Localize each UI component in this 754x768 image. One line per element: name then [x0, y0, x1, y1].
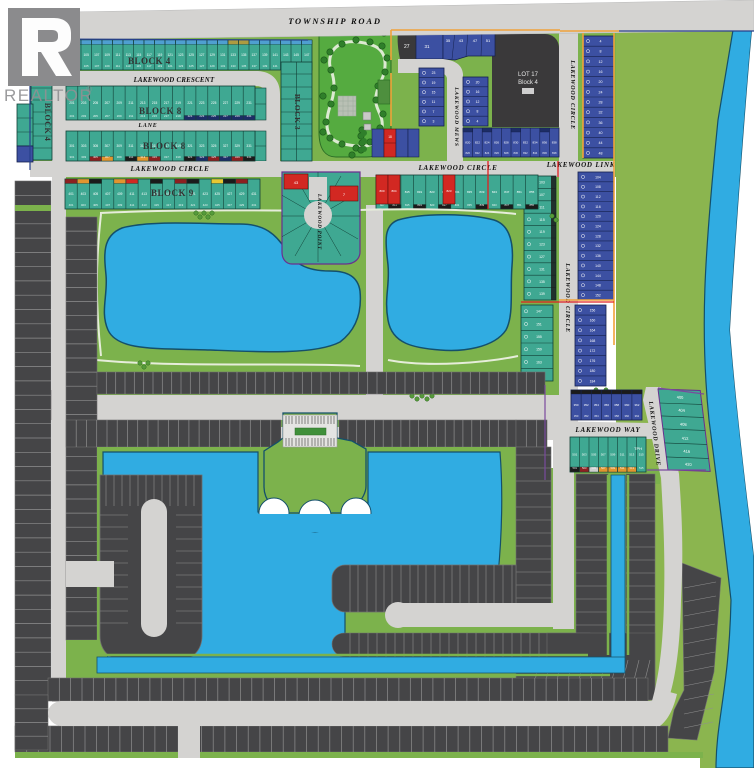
svg-text:501: 501	[572, 453, 577, 457]
svg-text:836: 836	[542, 141, 547, 145]
svg-text:511: 511	[620, 453, 625, 457]
svg-text:11: 11	[432, 100, 436, 104]
svg-text:127: 127	[199, 64, 204, 68]
svg-text:LOT 17: LOT 17	[518, 72, 539, 78]
svg-text:141: 141	[273, 53, 279, 57]
svg-text:109: 109	[105, 64, 110, 68]
svg-text:311: 311	[129, 155, 134, 159]
svg-text:505: 505	[591, 453, 596, 457]
svg-text:BLOCK 4: BLOCK 4	[128, 56, 171, 66]
svg-text:421: 421	[191, 203, 196, 207]
svg-text:141: 141	[273, 64, 278, 68]
svg-text:327: 327	[223, 155, 228, 159]
svg-text:327: 327	[223, 144, 229, 148]
svg-text:217: 217	[164, 101, 170, 105]
svg-text:111: 111	[116, 64, 121, 68]
svg-text:180: 180	[590, 369, 596, 373]
svg-text:834: 834	[533, 151, 538, 155]
svg-text:151: 151	[536, 322, 542, 326]
svg-text:109: 109	[105, 53, 111, 57]
svg-text:LAKEWOOD CRESCENT: LAKEWOOD CRESCENT	[133, 77, 215, 84]
svg-text:401: 401	[69, 203, 74, 207]
svg-text:301: 301	[69, 155, 74, 159]
svg-text:207: 207	[105, 114, 110, 118]
svg-text:838: 838	[552, 141, 557, 145]
svg-text:125: 125	[189, 64, 194, 68]
svg-text:8: 8	[600, 50, 602, 54]
svg-text:838: 838	[552, 151, 557, 155]
svg-text:303: 303	[81, 155, 86, 159]
svg-text:855: 855	[529, 190, 534, 194]
svg-text:163: 163	[536, 360, 542, 364]
svg-text:139: 139	[539, 292, 545, 296]
svg-text:27: 27	[404, 44, 410, 50]
svg-text:223: 223	[199, 114, 204, 118]
svg-text:309: 309	[117, 144, 123, 148]
svg-text:227: 227	[223, 114, 228, 118]
svg-text:172: 172	[590, 349, 596, 353]
svg-text:329: 329	[235, 155, 240, 159]
svg-text:168: 168	[590, 339, 596, 343]
svg-text:LANE: LANE	[137, 123, 157, 129]
svg-text:131: 131	[220, 53, 226, 57]
svg-text:307: 307	[105, 144, 111, 148]
svg-text:321: 321	[188, 155, 193, 159]
svg-text:819: 819	[417, 203, 422, 207]
svg-text:822: 822	[475, 141, 480, 145]
svg-text:354: 354	[594, 403, 599, 407]
svg-text:509: 509	[610, 453, 615, 457]
svg-text:505: 505	[592, 466, 597, 470]
svg-text:325: 325	[211, 155, 216, 159]
svg-text:515: 515	[639, 466, 644, 470]
svg-text:105: 105	[84, 53, 90, 57]
svg-text:319: 319	[176, 155, 181, 159]
svg-text:24: 24	[599, 90, 603, 94]
svg-text:148: 148	[595, 284, 601, 288]
svg-text:15: 15	[432, 91, 436, 95]
svg-text:120: 120	[595, 215, 601, 219]
svg-text:132: 132	[595, 244, 601, 248]
svg-text:419: 419	[178, 203, 183, 207]
svg-text:323: 323	[199, 155, 204, 159]
svg-text:507: 507	[601, 453, 606, 457]
svg-text:159: 159	[536, 348, 542, 352]
svg-text:331: 331	[246, 144, 252, 148]
svg-text:28: 28	[599, 101, 603, 105]
svg-text:323: 323	[199, 144, 205, 148]
svg-text:358: 358	[614, 414, 619, 418]
svg-text:843: 843	[492, 203, 497, 207]
svg-text:352: 352	[584, 403, 589, 407]
svg-text:325: 325	[211, 144, 217, 148]
svg-text:229: 229	[235, 114, 240, 118]
svg-text:415: 415	[154, 203, 159, 207]
svg-text:401: 401	[68, 192, 74, 196]
svg-text:207: 207	[105, 101, 111, 105]
svg-text:135: 135	[241, 53, 247, 57]
svg-text:229: 229	[235, 101, 241, 105]
svg-text:136: 136	[595, 254, 601, 258]
svg-text:513: 513	[630, 466, 635, 470]
svg-text:211: 211	[129, 114, 134, 118]
svg-text:209: 209	[117, 101, 123, 105]
svg-text:201: 201	[69, 114, 74, 118]
svg-text:BLOCK 9: BLOCK 9	[151, 188, 194, 198]
svg-text:184: 184	[590, 379, 596, 383]
svg-text:855: 855	[530, 203, 535, 207]
svg-text:427: 427	[227, 203, 232, 207]
svg-text:427: 427	[227, 192, 233, 196]
svg-text:129: 129	[210, 53, 216, 57]
svg-text:843: 843	[492, 190, 497, 194]
svg-text:839: 839	[480, 203, 485, 207]
svg-text:107: 107	[94, 64, 99, 68]
svg-text:BLOCK 8: BLOCK 8	[139, 106, 182, 116]
svg-text:409: 409	[117, 203, 122, 207]
svg-text:43: 43	[459, 38, 464, 43]
svg-text:137: 137	[252, 53, 258, 57]
svg-text:321: 321	[187, 144, 193, 148]
svg-text:43: 43	[294, 180, 299, 185]
svg-text:405: 405	[93, 192, 99, 196]
svg-text:515: 515	[639, 453, 644, 457]
svg-text:831: 831	[455, 203, 460, 207]
svg-text:313: 313	[140, 155, 145, 159]
svg-text:47: 47	[473, 38, 478, 43]
svg-text:830: 830	[514, 151, 519, 155]
svg-text:835: 835	[467, 190, 472, 194]
svg-text:225: 225	[211, 101, 217, 105]
svg-text:513: 513	[629, 453, 634, 457]
svg-text:205: 205	[93, 114, 98, 118]
svg-text:429: 429	[239, 192, 245, 196]
svg-text:221: 221	[187, 101, 193, 105]
svg-text:LAKEWOOD POINT: LAKEWOOD POINT	[316, 193, 321, 250]
svg-text:127: 127	[199, 53, 205, 57]
svg-text:®: ®	[86, 85, 92, 94]
svg-text:305: 305	[93, 144, 99, 148]
svg-text:145: 145	[294, 53, 300, 57]
svg-text:358: 358	[614, 403, 619, 407]
svg-text:143: 143	[283, 53, 289, 57]
svg-text:16: 16	[476, 90, 480, 94]
svg-text:105: 105	[84, 64, 89, 68]
svg-text:219: 219	[176, 101, 182, 105]
svg-text:828: 828	[504, 151, 509, 155]
svg-text:828: 828	[504, 141, 509, 145]
svg-text:362: 362	[634, 403, 639, 407]
svg-text:503: 503	[582, 466, 587, 470]
svg-text:350: 350	[574, 414, 579, 418]
svg-text:417: 417	[166, 203, 171, 207]
svg-text:354: 354	[594, 414, 599, 418]
svg-text:405: 405	[93, 203, 98, 207]
svg-text:315: 315	[152, 155, 157, 159]
svg-text:352: 352	[584, 414, 589, 418]
svg-text:303: 303	[81, 144, 87, 148]
svg-text:501: 501	[573, 466, 578, 470]
svg-text:832: 832	[523, 141, 528, 145]
svg-text:356: 356	[604, 414, 609, 418]
svg-text:830: 830	[513, 141, 518, 145]
svg-text:LAKEWOOD CIRCLE: LAKEWOOD CIRCLE	[564, 262, 570, 333]
svg-text:44: 44	[599, 141, 603, 145]
svg-text:16: 16	[599, 70, 603, 74]
svg-text:211: 211	[128, 101, 133, 105]
svg-text:329: 329	[235, 144, 241, 148]
svg-text:12: 12	[599, 60, 603, 64]
svg-text:836: 836	[542, 151, 547, 155]
svg-text:40: 40	[599, 131, 603, 135]
svg-text:115: 115	[539, 218, 545, 222]
svg-text:112: 112	[595, 195, 601, 199]
svg-text:407: 407	[105, 203, 110, 207]
svg-text:LAKEWOOD CIRCLE: LAKEWOOD CIRCLE	[129, 165, 209, 173]
svg-text:309: 309	[117, 155, 122, 159]
svg-text:213: 213	[140, 101, 146, 105]
svg-text:131: 131	[539, 267, 545, 271]
svg-text:147: 147	[304, 53, 310, 57]
svg-text:19: 19	[432, 81, 436, 85]
svg-text:847: 847	[505, 203, 510, 207]
svg-text:20: 20	[599, 80, 603, 84]
svg-text:215: 215	[152, 101, 158, 105]
svg-text:111: 111	[115, 53, 120, 57]
svg-text:REALTOR: REALTOR	[4, 86, 93, 105]
svg-text:425: 425	[215, 203, 220, 207]
svg-text:503: 503	[582, 453, 587, 457]
svg-text:507: 507	[601, 466, 606, 470]
svg-text:429: 429	[239, 203, 244, 207]
svg-text:834: 834	[532, 141, 537, 145]
svg-text:123: 123	[178, 53, 184, 57]
svg-text:824: 824	[485, 151, 490, 155]
svg-text:51: 51	[486, 38, 491, 43]
svg-text:403: 403	[81, 192, 87, 196]
svg-text:124: 124	[595, 225, 601, 229]
svg-text:144: 144	[595, 274, 601, 278]
svg-text:411: 411	[129, 192, 134, 196]
svg-text:819: 819	[417, 190, 422, 194]
svg-text:LAKEWOOD LINK: LAKEWOOD LINK	[546, 161, 616, 169]
svg-text:123: 123	[539, 243, 545, 247]
svg-text:851: 851	[517, 190, 522, 194]
svg-text:4: 4	[477, 120, 479, 124]
svg-text:108: 108	[595, 185, 601, 189]
svg-text:127: 127	[539, 255, 545, 259]
svg-text:131: 131	[220, 64, 225, 68]
svg-text:317: 317	[164, 155, 169, 159]
svg-text:839: 839	[479, 190, 484, 194]
svg-text:223: 223	[199, 101, 205, 105]
svg-text:Block 4: Block 4	[518, 80, 538, 86]
svg-text:205: 205	[93, 101, 99, 105]
svg-text:20: 20	[476, 80, 480, 84]
svg-text:3: 3	[433, 120, 435, 124]
svg-text:851: 851	[517, 203, 522, 207]
svg-text:LAKEWOOD WAY: LAKEWOOD WAY	[574, 426, 640, 434]
svg-text:826: 826	[494, 151, 499, 155]
svg-text:135: 135	[241, 64, 246, 68]
svg-text:847: 847	[504, 190, 509, 194]
svg-text:133: 133	[231, 64, 236, 68]
svg-text:826: 826	[494, 141, 499, 145]
svg-text:231: 231	[246, 101, 252, 105]
svg-text:407: 407	[105, 192, 111, 196]
svg-text:129: 129	[210, 64, 215, 68]
svg-text:431: 431	[251, 203, 256, 207]
svg-text:824: 824	[484, 141, 489, 145]
svg-text:800: 800	[379, 189, 384, 193]
svg-text:203: 203	[81, 114, 86, 118]
svg-text:TOWNSHIP ROAD: TOWNSHIP ROAD	[288, 16, 382, 26]
svg-text:119: 119	[539, 230, 545, 234]
svg-text:403: 403	[81, 203, 86, 207]
svg-text:152: 152	[595, 294, 601, 298]
svg-text:356: 356	[604, 403, 609, 407]
svg-text:413: 413	[142, 203, 147, 207]
svg-text:35: 35	[446, 38, 451, 43]
svg-text:815: 815	[405, 203, 410, 207]
svg-text:820: 820	[465, 141, 470, 145]
svg-text:BLOCK 4: BLOCK 4	[43, 103, 52, 141]
svg-text:413: 413	[142, 192, 148, 196]
svg-text:7: 7	[433, 110, 435, 114]
svg-text:140: 140	[595, 264, 601, 268]
svg-text:423: 423	[203, 203, 208, 207]
svg-text:823: 823	[430, 203, 435, 207]
svg-text:104: 104	[595, 175, 601, 179]
svg-text:123: 123	[178, 64, 183, 68]
svg-text:227: 227	[223, 101, 229, 105]
svg-text:431: 431	[251, 192, 257, 196]
svg-text:12: 12	[476, 100, 480, 104]
svg-text:231: 231	[247, 114, 252, 118]
svg-text:331: 331	[247, 155, 252, 159]
svg-text:107: 107	[94, 53, 100, 57]
svg-text:116: 116	[595, 205, 601, 209]
svg-text:32: 32	[599, 111, 603, 115]
svg-text:360: 360	[625, 414, 630, 418]
svg-text:225: 225	[211, 114, 216, 118]
svg-text:36: 36	[599, 121, 603, 125]
svg-text:23: 23	[432, 71, 436, 75]
svg-text:301: 301	[69, 144, 75, 148]
svg-text:822: 822	[475, 151, 480, 155]
svg-text:139: 139	[262, 53, 268, 57]
svg-text:111: 111	[539, 205, 544, 209]
svg-text:LAKEWOOD CIRCLE: LAKEWOOD CIRCLE	[569, 59, 575, 130]
svg-text:147: 147	[536, 310, 542, 314]
svg-text:820: 820	[466, 151, 471, 155]
svg-text:511: 511	[620, 466, 625, 470]
svg-text:221: 221	[188, 114, 193, 118]
svg-text:103: 103	[539, 181, 545, 185]
svg-text:804: 804	[391, 189, 396, 193]
svg-text:125: 125	[189, 53, 195, 57]
svg-text:425: 425	[215, 192, 221, 196]
svg-text:4: 4	[600, 40, 602, 44]
svg-text:823: 823	[446, 189, 451, 193]
svg-text:TPH: TPH	[634, 446, 642, 451]
svg-text:307: 307	[105, 155, 110, 159]
svg-text:832: 832	[523, 151, 528, 155]
svg-text:139: 139	[262, 64, 267, 68]
svg-text:31: 31	[424, 44, 430, 49]
svg-text:509: 509	[611, 466, 616, 470]
svg-text:156: 156	[590, 309, 596, 313]
svg-text:LAKEWOOD CIRCLE: LAKEWOOD CIRCLE	[417, 164, 497, 172]
svg-text:48: 48	[599, 151, 603, 155]
svg-text:8: 8	[477, 110, 479, 114]
svg-text:155: 155	[536, 335, 542, 339]
svg-text:409: 409	[117, 192, 123, 196]
svg-text:209: 209	[117, 114, 122, 118]
svg-text:133: 133	[231, 53, 237, 57]
svg-text:LAKEWOOD MEWS: LAKEWOOD MEWS	[453, 86, 459, 146]
svg-text:BLOCK 8: BLOCK 8	[143, 141, 186, 151]
svg-text:128: 128	[595, 234, 601, 238]
svg-text:311: 311	[128, 144, 133, 148]
svg-text:107: 107	[539, 193, 545, 197]
svg-text:160: 160	[590, 319, 596, 323]
svg-text:350: 350	[574, 403, 579, 407]
svg-text:423: 423	[203, 192, 209, 196]
svg-text:164: 164	[590, 329, 596, 333]
svg-text:835: 835	[467, 203, 472, 207]
svg-text:305: 305	[93, 155, 98, 159]
svg-text:BLOCK 3: BLOCK 3	[293, 94, 302, 130]
svg-text:135: 135	[539, 280, 545, 284]
svg-text:176: 176	[590, 359, 596, 363]
svg-text:823: 823	[430, 190, 435, 194]
svg-text:360: 360	[624, 403, 629, 407]
svg-text:137: 137	[252, 64, 257, 68]
svg-text:411: 411	[130, 203, 135, 207]
svg-text:18: 18	[388, 135, 392, 139]
svg-text:362: 362	[635, 414, 640, 418]
svg-text:815: 815	[405, 190, 410, 194]
